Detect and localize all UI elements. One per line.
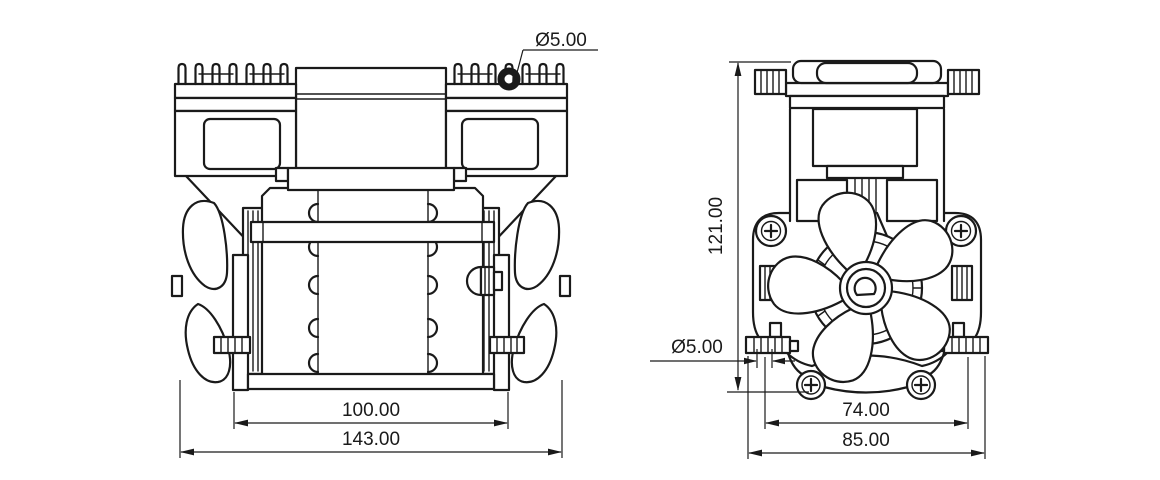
fan-hub [840,262,892,314]
dim-label-side-height: 121.00 [706,197,727,255]
dim-label-front-hole: Ø5.00 [535,30,587,51]
side-head [755,61,979,108]
cylinder-head-left [175,84,296,176]
dim-label-side-foot-hole: Ø5.00 [671,337,723,358]
front-left-leg [233,255,248,390]
front-left-fan [172,201,230,382]
drawing-canvas: 100.00 143.00 Ø5.00 121.00 Ø5.00 [0,0,1160,480]
shaft-d-hole [855,278,876,295]
hose-barb-left [755,70,786,94]
dim-front-hole: Ø5.00 [512,30,598,87]
front-right-fan [512,201,570,382]
base-plate [248,374,494,389]
side-view [746,61,988,399]
head-bridge [296,68,446,176]
compressor-two-view-technical-drawing: 100.00 143.00 Ø5.00 121.00 Ø5.00 [0,0,1160,480]
front-left-nut [214,337,250,353]
dim-label-side-overall-width: 85.00 [842,430,890,451]
dim-label-front-overall-width: 143.00 [342,429,400,450]
dim-label-front-inner-width: 100.00 [342,400,400,421]
cooling-fins-left [179,64,288,84]
motor-strap [251,222,494,242]
front-view [172,64,570,390]
hose-barb-right [948,70,979,94]
motor-body [262,188,483,375]
dim-front-inner-width: 100.00 [234,392,508,429]
upper-motor-block [276,168,466,190]
cylinder-head-right [446,84,567,176]
shroud-rib-right [952,266,972,300]
front-right-nut [490,337,524,353]
front-shaft-bolt [467,267,502,295]
dim-label-side-hole-spacing: 74.00 [842,400,890,421]
